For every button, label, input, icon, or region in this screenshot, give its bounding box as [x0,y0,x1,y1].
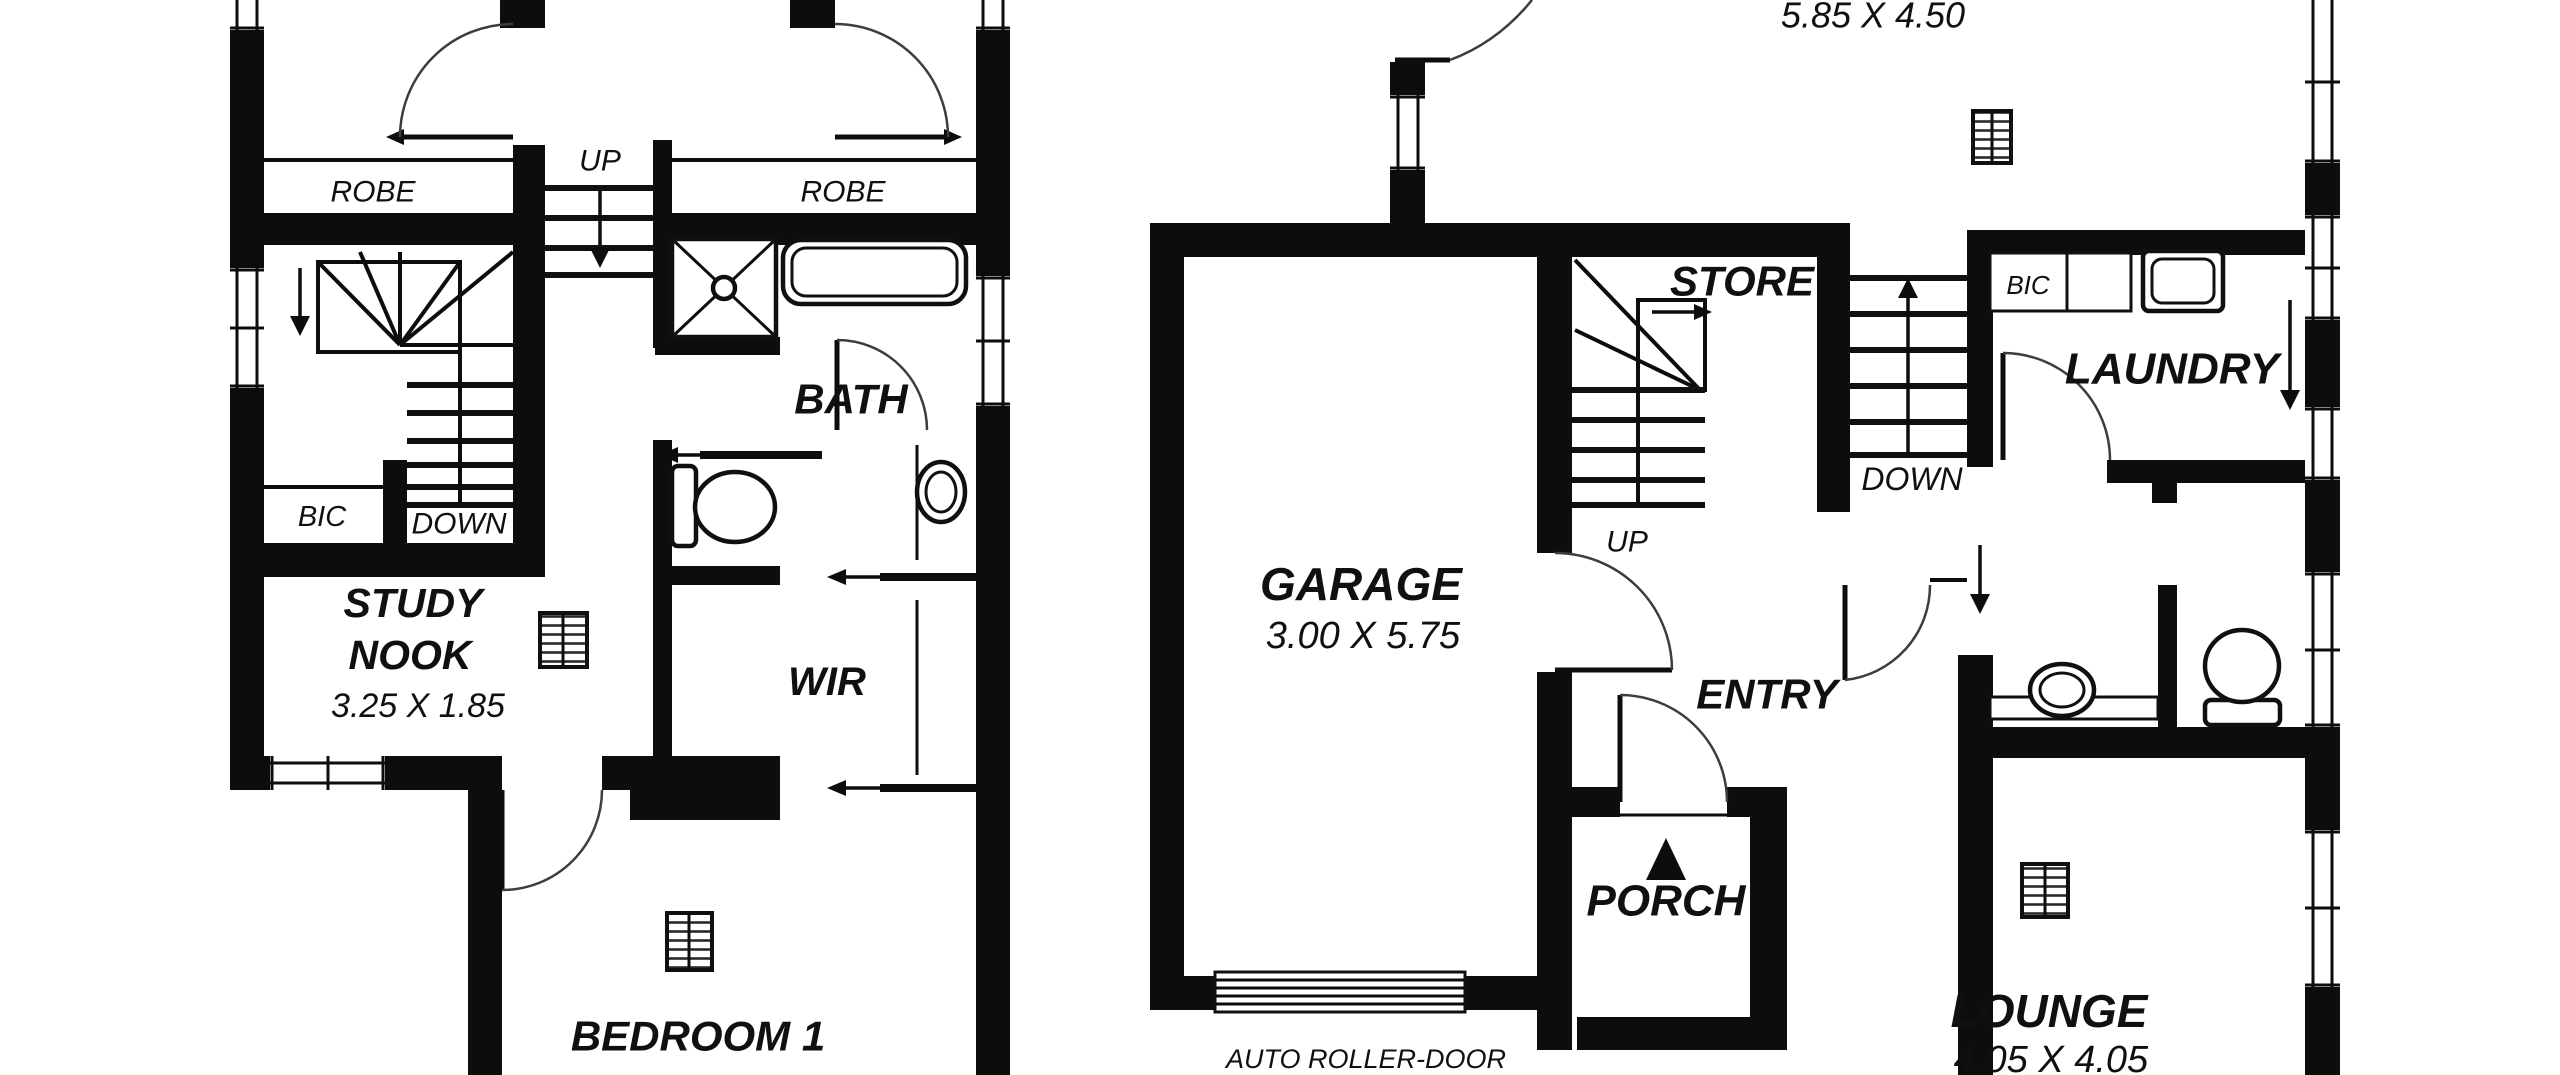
door-top-left-room [386,24,513,145]
room-dimension-top-room: 5.85 X 4.50 [1781,0,1965,36]
room-label-bath: BATH [794,376,909,423]
room-label-bic: BIC [2006,270,2050,300]
window [230,268,264,388]
room-label-lounge: LOUNGE [1951,985,2149,1037]
stair-direction-arrow [590,248,610,268]
window [270,756,385,790]
window [2305,407,2340,480]
sliding-door-wc [660,447,822,463]
sliding-screen-door [2305,215,2340,320]
window [976,276,1010,406]
window [1390,95,1425,170]
room-label-porch: PORCH [1587,877,1747,926]
floor-plan-drawing: ROBE UP ROBE BATH BIC DOWN STUDY NOOK 3.… [0,0,2560,1075]
hall-arrow [1970,545,1990,614]
stair-label-down: DOWN [412,508,507,541]
laundry-sink [2143,251,2223,311]
toilet [2205,630,2280,725]
toilet [672,466,775,546]
window [2305,572,2340,727]
room-label-study: STUDY [344,580,487,626]
room-dimension-bedroom1: 4.05 X 2.50 [603,1069,797,1075]
garage-roller-door [1215,972,1465,1012]
stair-direction-arrow [290,316,310,336]
laundry-cabinet [2067,253,2131,311]
door-top-room [1395,0,1532,60]
window [2305,830,2340,987]
floor-plan-page: ROBE UP ROBE BATH BIC DOWN STUDY NOOK 3.… [0,0,2560,1075]
vanity-basin [1990,664,2158,719]
stairs-down-ground-floor [1850,278,1967,455]
entry-direction-triangle [1646,838,1686,880]
room-label-nook: NOOK [349,632,475,678]
room-label-entry: ENTRY [1696,671,1842,718]
sliding-door-bath-hall [827,569,985,585]
sliding-door-wir [827,780,985,796]
room-label-robe-left: ROBE [330,176,416,209]
laundry-exit-arrow [2280,300,2300,410]
room-dimension-lounge: 4.05 X 4.05 [1954,1039,2149,1075]
stair-label-up: UP [579,145,621,178]
bathtub [783,240,966,304]
door-top-right-room [835,24,962,145]
window [976,0,1010,30]
stairs-up-first-floor [545,188,653,275]
room-dimension-garage: 3.00 X 5.75 [1266,615,1461,657]
door-wc [1845,585,1930,680]
ground-floor-plan: 5.85 X 4.50 GARAGE 3.00 X 5.75 STORE UP … [1150,0,2340,1075]
door-garage-to-hall [1555,553,1672,670]
room-label-garage: GARAGE [1260,558,1463,610]
room-label-store: STORE [1670,258,1816,305]
first-floor-plan: ROBE UP ROBE BATH BIC DOWN STUDY NOOK 3.… [230,0,1010,1075]
room-label-bedroom1: BEDROOM 1 [571,1013,825,1060]
window [230,0,264,30]
room-label-laundry: LAUNDRY [2065,345,2283,394]
room-label-robe-right: ROBE [800,176,886,209]
label-auto-roller-door: AUTO ROLLER-DOOR [1224,1044,1506,1074]
stair-label-down: DOWN [1861,461,1963,497]
window [2305,0,2340,163]
stair-label-up: UP [1606,526,1648,559]
room-label-wir: WIR [788,660,866,704]
room-dimension-study-nook: 3.25 X 1.85 [331,687,505,725]
shower [672,239,776,337]
door-bedroom1 [502,790,602,890]
basin [917,445,965,560]
room-label-bic: BIC [298,501,347,533]
